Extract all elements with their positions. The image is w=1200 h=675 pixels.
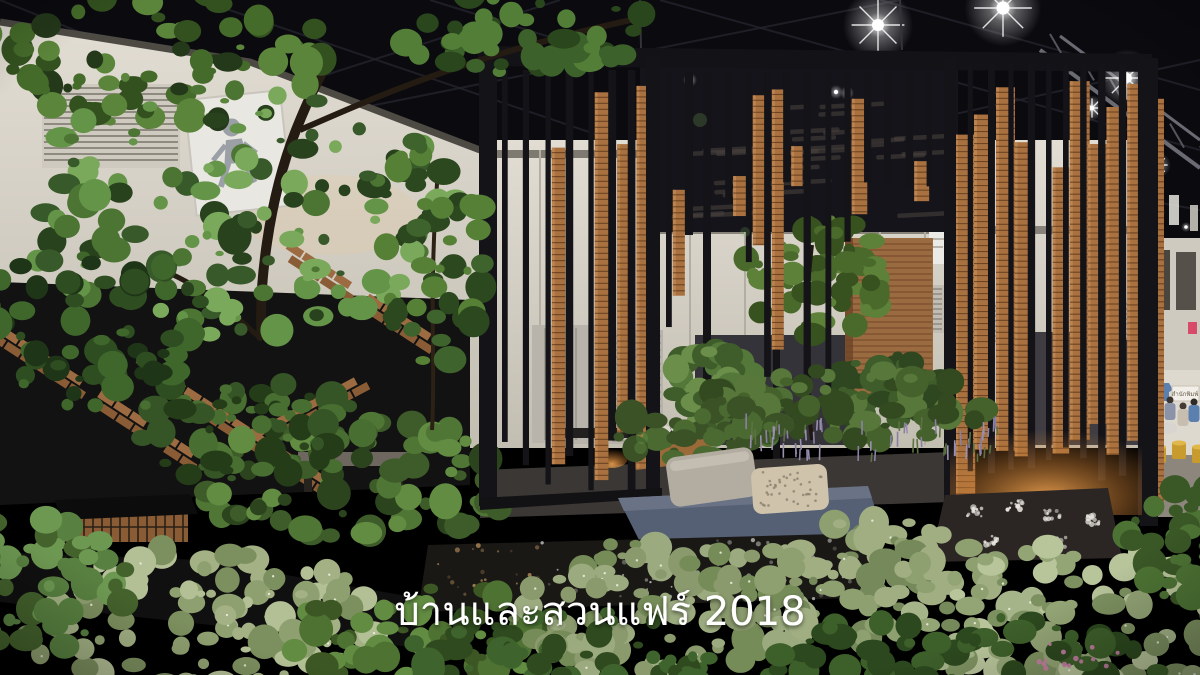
photo-stage: 6 7 <box>0 0 1200 675</box>
photo-vignette <box>0 0 1200 675</box>
exhibition-photo: 6 7 <box>0 0 1200 675</box>
photo-caption: บ้านและสวนแฟร์ 2018 <box>394 589 805 635</box>
